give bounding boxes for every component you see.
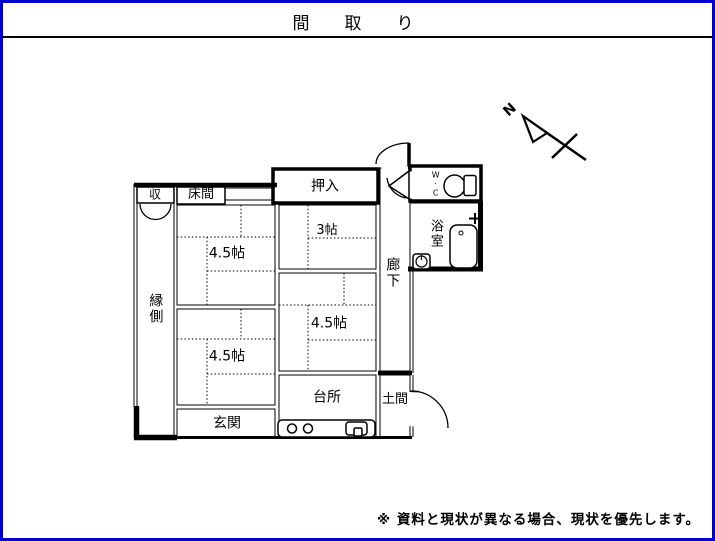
label-room-3mat: 3帖 (316, 224, 337, 238)
kitchen-sink-drain-icon (354, 428, 362, 436)
label-room-45-top-left: 4.5帖 (209, 247, 245, 262)
label-engawa: 縁側 (148, 293, 163, 325)
storage-door-arc-left (140, 204, 156, 220)
label-wc: W·C (431, 171, 439, 198)
label-storage: 収 (149, 189, 161, 202)
toilet-tank-icon (464, 176, 476, 196)
stove-burner-icon (288, 424, 297, 433)
wc-door-leaf (389, 171, 409, 199)
label-oshiire: 押入 (311, 180, 339, 195)
footer-disclaimer: ※ 資料と現状が異なる場合、現状を優先します。 (377, 508, 700, 528)
label-kitchen: 台所 (313, 391, 341, 406)
alcove-box-outline (225, 188, 275, 200)
floor-plan-page: 間 取 り (0, 0, 715, 541)
stove-burner-icon (304, 424, 313, 433)
toilet-bowl-icon (444, 175, 465, 197)
entry-door-arc (376, 143, 409, 164)
label-corridor: 廊下 (385, 257, 400, 289)
bathtub-icon (450, 225, 477, 268)
label-doma: 土間 (382, 393, 408, 407)
label-bathroom: 浴室 (428, 219, 442, 249)
storage-door-arc-right (156, 204, 172, 220)
floor-plan-drawing (3, 3, 715, 541)
label-tokonoma: 床間 (188, 188, 214, 202)
doma-door-arc (411, 391, 448, 428)
label-genkan: 玄関 (213, 417, 241, 432)
label-room-45-bottom-left: 4.5帖 (209, 350, 245, 365)
compass-icon (523, 116, 586, 160)
label-room-45-middle-right: 4.5帖 (311, 317, 347, 332)
bathtub-drain-icon (459, 231, 463, 235)
